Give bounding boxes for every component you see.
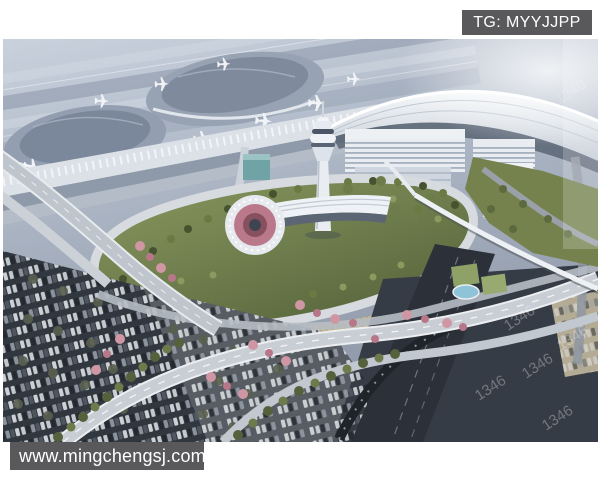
airport-rendering-image: 1346 1346 1346 1346 1346 1346	[3, 39, 598, 442]
edge-haze	[563, 39, 598, 249]
pond	[453, 285, 479, 299]
circular-plaza	[225, 195, 285, 255]
rendering-scene: 1346 1346 1346 1346 1346 1346	[3, 39, 598, 442]
telegram-tag-badge: TG: MYYJJPP	[462, 10, 592, 35]
page: 1346 1346 1346 1346 1346 1346 TG: MYYJJP…	[0, 0, 600, 480]
website-badge: www.mingchengsj.com	[10, 442, 204, 470]
telegram-tag-text: TG: MYYJJPP	[473, 14, 581, 32]
website-text: www.mingchengsj.com	[19, 446, 206, 467]
